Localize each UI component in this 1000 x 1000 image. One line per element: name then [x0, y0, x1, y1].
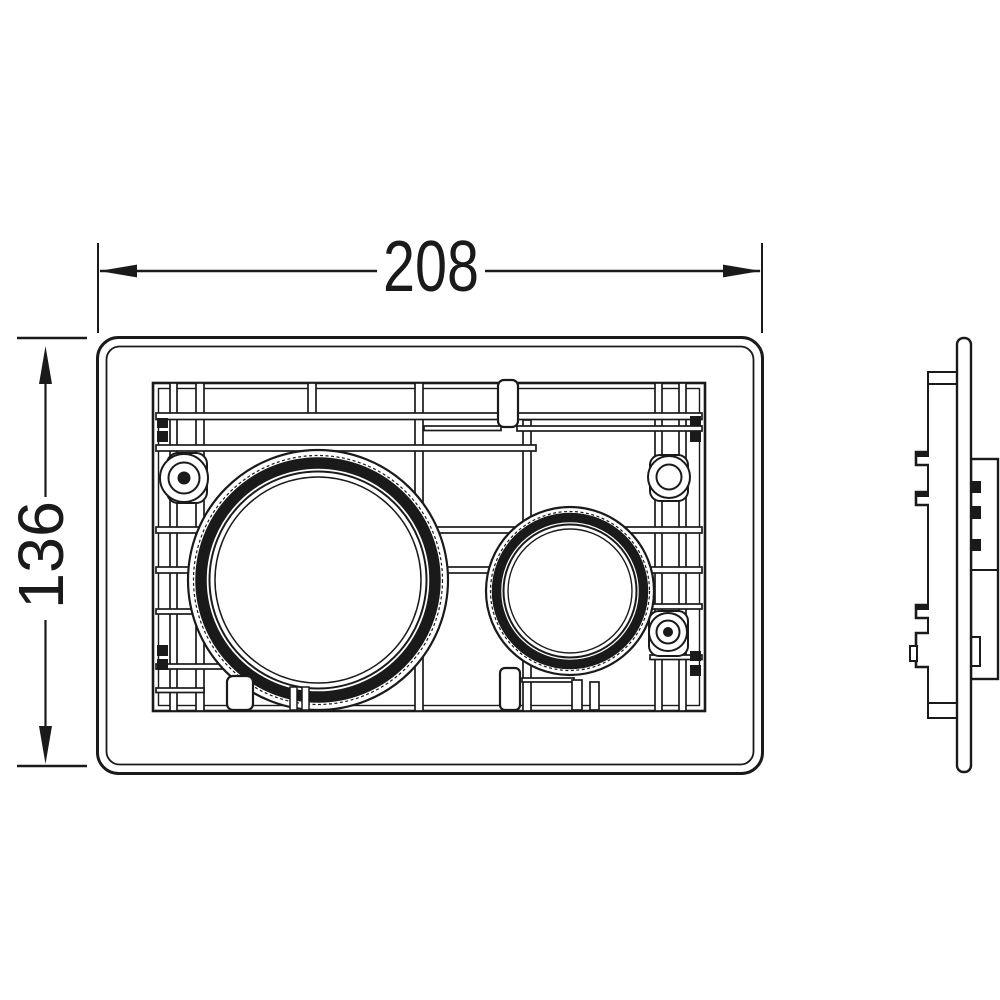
- arrowhead-down-icon: [39, 726, 52, 764]
- screw-hole-bottom-right: [649, 611, 688, 656]
- width-dimension: 208: [98, 227, 762, 333]
- side-view: [910, 338, 998, 772]
- height-dimension-value: 136: [5, 501, 77, 609]
- large-flush-button: [188, 450, 448, 710]
- top-center-tab: [498, 380, 518, 427]
- width-dimension-value: 208: [383, 227, 479, 307]
- body: [928, 384, 958, 703]
- arrowhead-left-icon: [99, 265, 137, 278]
- technical-drawing: 208 136: [0, 0, 1000, 1000]
- arrowhead-up-icon: [39, 346, 52, 384]
- screw-hole-top-left: [160, 453, 208, 503]
- height-dimension: 136: [5, 338, 87, 766]
- small-flush-button: [486, 507, 654, 675]
- retaining-clips: [910, 452, 929, 667]
- arrowhead-right-icon: [723, 265, 761, 278]
- plate-profile: [957, 338, 971, 772]
- screw-hole-top-right: [648, 455, 690, 501]
- technical-drawing-canvas: 208 136: [0, 0, 1000, 1000]
- body-top-flange: [928, 372, 958, 384]
- front-view: [98, 338, 763, 774]
